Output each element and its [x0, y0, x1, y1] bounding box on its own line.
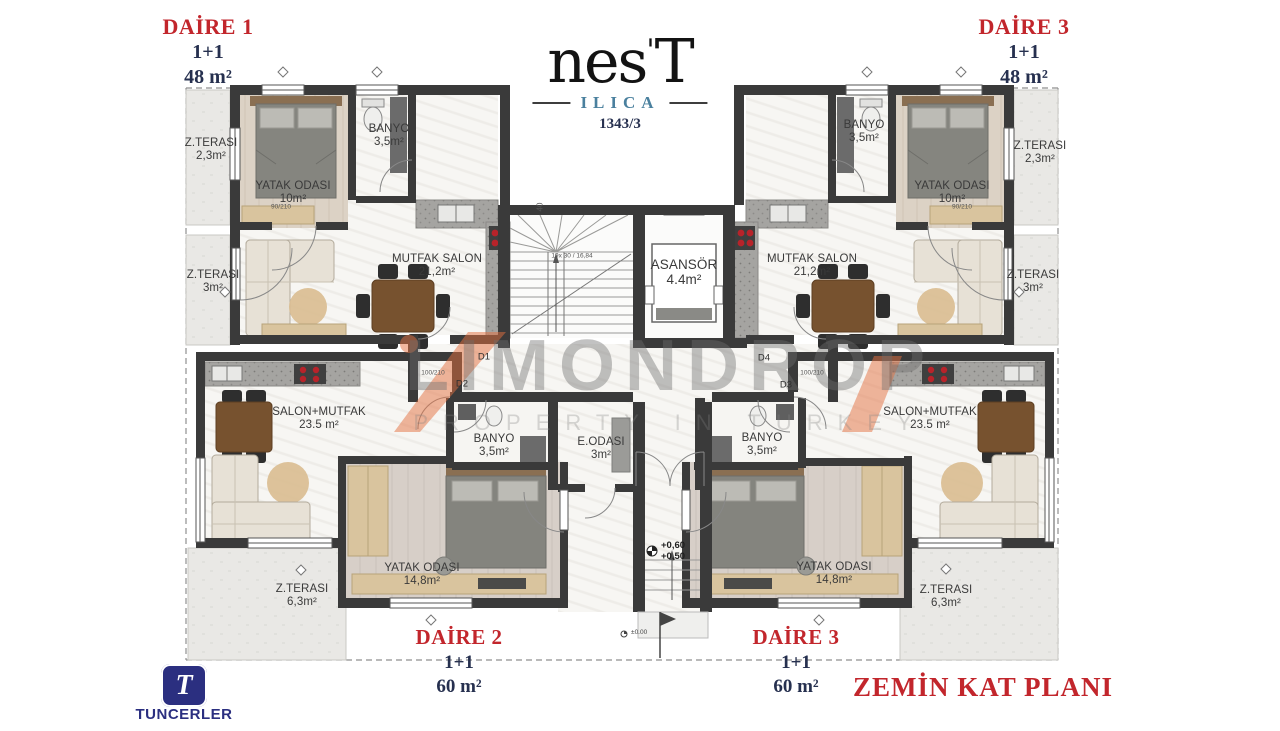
tuncerler-initial: T [175, 670, 192, 702]
room-label-bedroom-upper-left: YATAK ODASI10m² [255, 180, 330, 206]
room-label-terrace-mid-right: Z.TERASI3m² [1007, 269, 1060, 295]
nest-logo: nes'T ILICA 1343/3 [532, 22, 707, 133]
daire3-lower-layout: 1+1 [753, 650, 840, 675]
daire1-title: DAİRE 1 [163, 14, 254, 40]
dim-door-main-left: 100/210 [421, 370, 445, 377]
stairs-note: 19x 30 / 16,84 [551, 253, 592, 260]
floor-plan-page: LIMONDROP PROPERTY IN TURKEY DAİRE 1 1+1… [0, 0, 1280, 731]
logo-tick-mark: ' [646, 33, 654, 68]
daire1-layout: 1+1 [163, 40, 254, 65]
logo-block-number: 1343/3 [532, 116, 707, 133]
room-label-entry-room: E.ODASI3m² [577, 436, 624, 462]
room-label-living-lower-right: SALON+MUTFAK23.5 m² [883, 406, 977, 432]
plan-title: ZEMİN KAT PLANI [853, 672, 1113, 703]
rug-lower-left [267, 462, 309, 504]
level-ground: ±0.00 [631, 629, 647, 636]
door-label-d3: D3 [780, 380, 792, 391]
room-label-living-upper-left: MUTFAK SALON21,2m² [392, 253, 482, 279]
daire3-lower-area: 60 m² [753, 675, 840, 699]
header-daire2: DAİRE 2 1+1 60 m² [416, 624, 503, 699]
room-label-terrace-upper-right: Z.TERASI2,3m² [1014, 140, 1067, 166]
room-label-living-upper-right: MUTFAK SALON21,2m² [767, 253, 857, 279]
daire3-lower-title: DAİRE 3 [753, 624, 840, 650]
rug-lower-right [941, 462, 983, 504]
rug-upper-right [917, 288, 955, 326]
daire1-area: 48 m² [163, 65, 254, 89]
room-label-bath-lower-right: BANYO3,5m² [742, 432, 783, 458]
nest-logo-wordmark: nes'T [532, 22, 707, 91]
rug-upper-left [289, 288, 327, 326]
room-label-bath-lower-left: BANYO3,5m² [474, 433, 515, 459]
room-label-terrace-mid-left: Z.TERASI3m² [187, 269, 240, 295]
daire2-layout: 1+1 [416, 650, 503, 675]
tuncerler-logo-icon: T [161, 664, 207, 707]
door-label-d2: D2 [456, 379, 468, 390]
level-entry-lower: +0,50 [661, 551, 685, 562]
room-label-terrace-lower-right: Z.TERASI6,3m² [920, 584, 973, 610]
daire3-upper-layout: 1+1 [979, 40, 1070, 65]
room-label-bath-upper-right: BANYO3,5m² [844, 119, 885, 145]
logo-dash-right [670, 102, 708, 104]
daire2-area: 60 m² [416, 675, 503, 699]
level-entry-upper: +0,60 [661, 540, 685, 551]
door-label-d4: D4 [758, 353, 770, 364]
header-daire3-upper: DAİRE 3 1+1 48 m² [979, 14, 1070, 89]
dim-door-room-right: 90/210 [952, 204, 972, 211]
logo-dash-left [532, 102, 570, 104]
console-upper-right [898, 324, 982, 336]
header-daire1: DAİRE 1 1+1 48 m² [163, 14, 254, 89]
room-label-bedroom-upper-right: YATAK ODASI10m² [914, 180, 989, 206]
room-label-terrace-lower-left: Z.TERASI6,3m² [276, 583, 329, 609]
dim-door-main-right: 100/210 [800, 370, 824, 377]
dim-door-room-left: 90/210 [271, 204, 291, 211]
console-upper-left [262, 324, 346, 336]
room-label-elevator: ASANSÖR4.4m² [651, 257, 718, 287]
room-label-terrace-upper-left: Z.TERASI2,3m² [185, 137, 238, 163]
daire2-title: DAİRE 2 [416, 624, 503, 650]
room-label-bedroom-lower-left: YATAK ODASI14,8m² [384, 562, 459, 588]
dim-wall-40: 40 [536, 203, 545, 212]
room-label-living-lower-left: SALON+MUTFAK23.5 m² [272, 406, 366, 432]
daire3-upper-title: DAİRE 3 [979, 14, 1070, 40]
header-daire3-lower: DAİRE 3 1+1 60 m² [753, 624, 840, 699]
daire3-upper-area: 48 m² [979, 65, 1070, 89]
tuncerler-name: TUNCERLER [136, 706, 233, 723]
level-markers: +0,60 +0,50 [661, 540, 685, 563]
room-label-bedroom-lower-right: YATAK ODASI14,8m² [796, 561, 871, 587]
door-label-d1: D1 [478, 352, 490, 363]
room-label-bath-upper-left: BANYO3,5m² [369, 123, 410, 149]
logo-location: ILICA [580, 93, 659, 113]
